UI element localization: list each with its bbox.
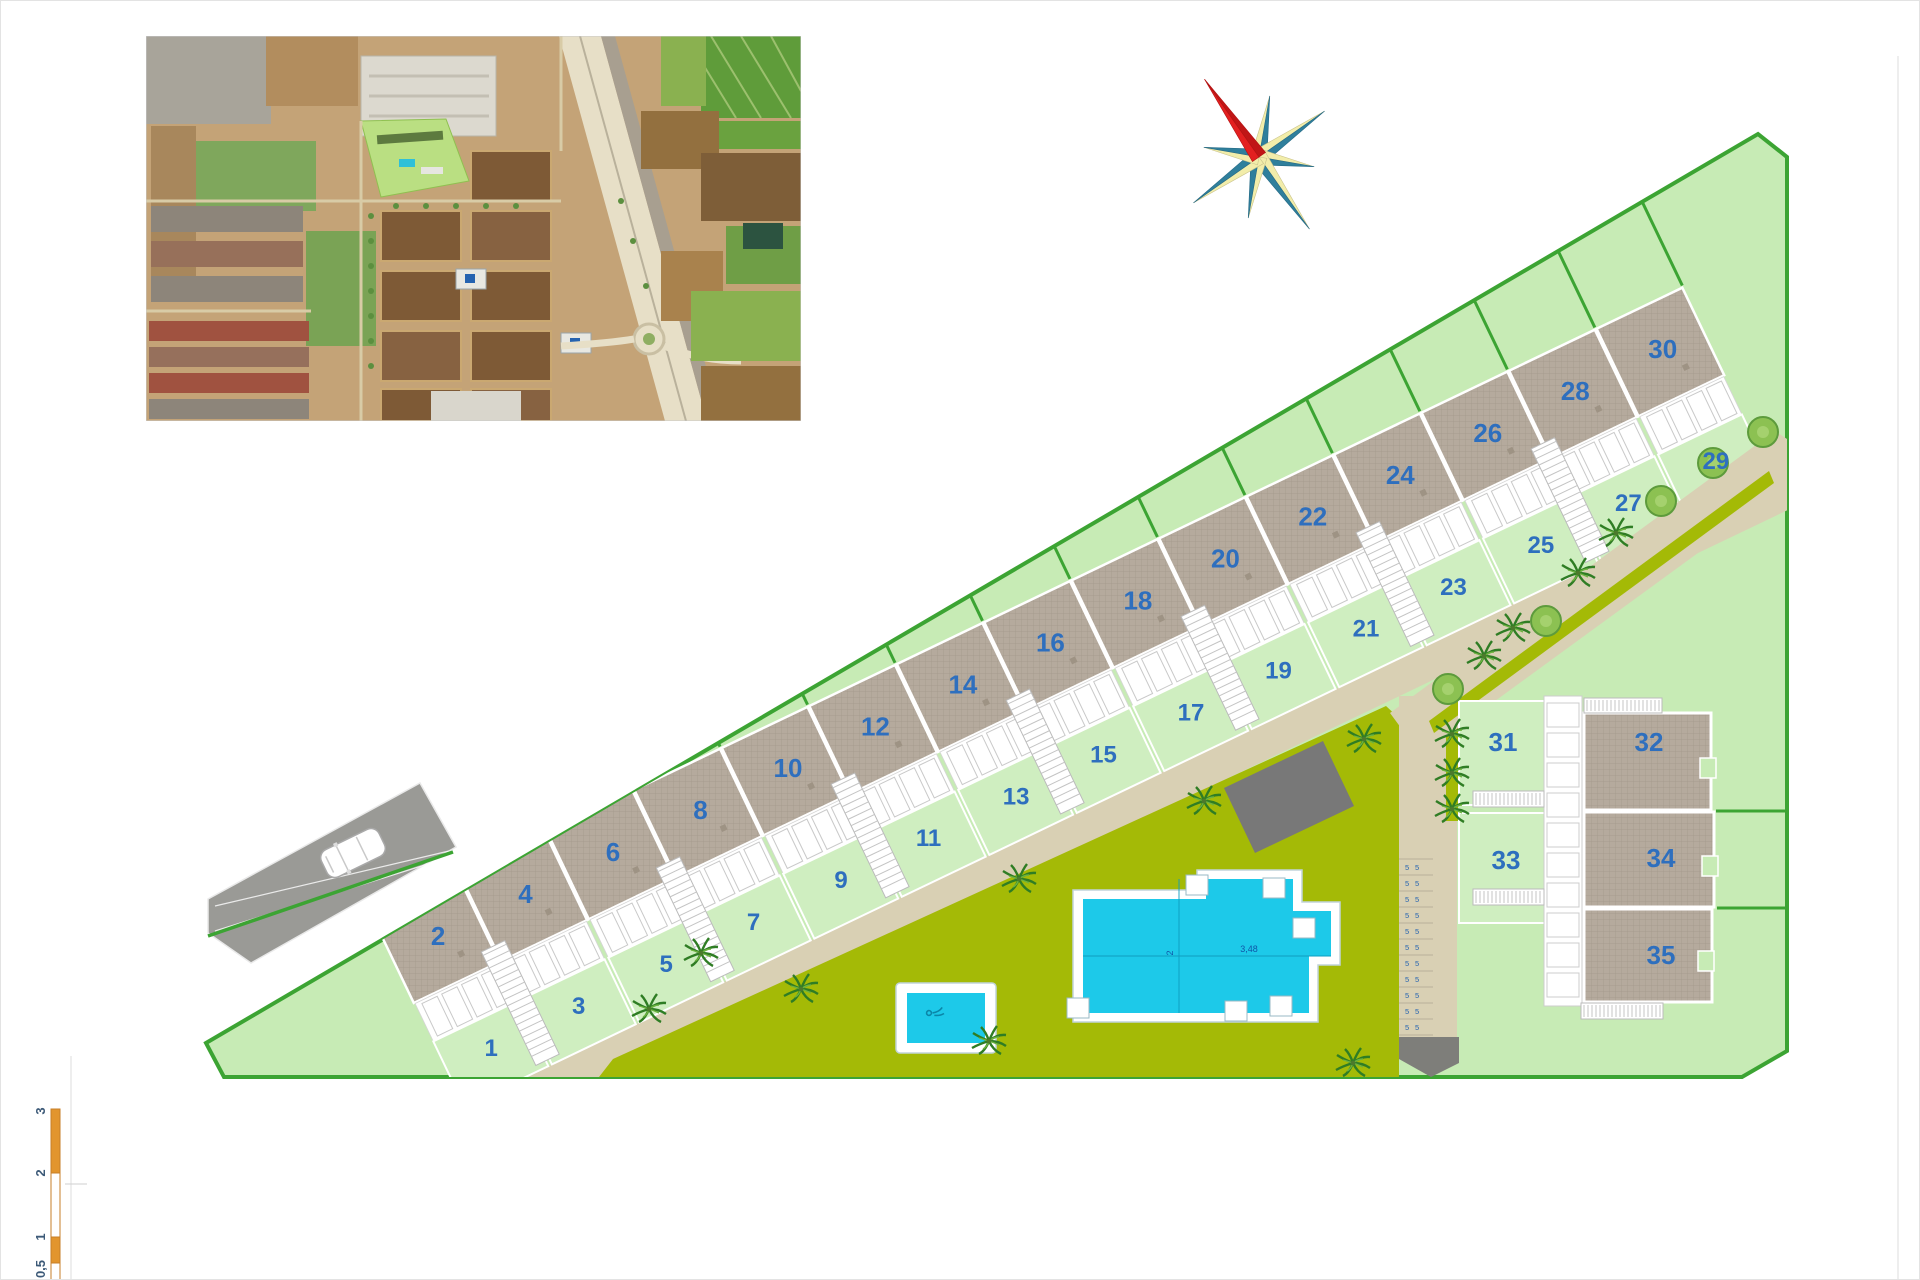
access-road: 555555555555555555555555: [1399, 696, 1459, 1077]
plot-label: 29: [1703, 448, 1730, 475]
plot-label: 24: [1386, 460, 1415, 490]
scale-bar: 3210,5: [33, 1107, 60, 1280]
pool-dim-width: 2: [1165, 950, 1175, 955]
plot-label: 5: [660, 951, 673, 978]
parking-mark: 5: [1405, 927, 1409, 936]
main-pool: 23,48: [1067, 870, 1340, 1022]
plot-label: 31: [1489, 727, 1518, 757]
plot-label: 16: [1036, 628, 1065, 658]
plot-label: 9: [834, 867, 847, 894]
plot-label: 12: [861, 711, 890, 741]
plot-label: 21: [1353, 616, 1380, 643]
parking-mark: 5: [1405, 1007, 1409, 1016]
parking-mark: 5: [1415, 895, 1419, 904]
parking-mark: 5: [1405, 911, 1409, 920]
plot-label: 22: [1298, 502, 1327, 532]
plot-label: 34: [1647, 843, 1676, 873]
plot-label: 25: [1528, 532, 1555, 559]
parking-mark: 5: [1405, 863, 1409, 872]
plot-label: 4: [518, 879, 533, 909]
plot-label: 15: [1090, 741, 1117, 768]
scale-label: 3: [33, 1107, 48, 1114]
plot-label: 32: [1635, 727, 1664, 757]
scale-label: 2: [33, 1169, 48, 1176]
round-tree: [1748, 417, 1778, 447]
plot-label: 27: [1615, 490, 1642, 517]
round-tree: [1646, 486, 1676, 516]
parking-mark: 5: [1415, 943, 1419, 952]
compass-rose: [1175, 73, 1338, 236]
plot-label: 11: [916, 825, 941, 852]
parking-mark: 5: [1415, 959, 1419, 968]
parking-mark: 5: [1415, 1007, 1419, 1016]
parking-mark: 5: [1415, 991, 1419, 1000]
plot-label: 35: [1647, 940, 1676, 970]
plot-label: 1: [485, 1035, 498, 1062]
plot-label: 17: [1178, 700, 1205, 727]
parking-mark: 5: [1405, 975, 1409, 984]
plot-label: 2: [431, 921, 445, 951]
plot-label: 30: [1648, 334, 1677, 364]
parking-mark: 5: [1415, 975, 1419, 984]
plot-label: 7: [747, 909, 760, 936]
plot-label: 23: [1440, 574, 1467, 601]
parking-mark: 5: [1405, 991, 1409, 1000]
pool-dim-length: 3,48: [1240, 944, 1258, 954]
site-plan-page: 555555555555555555555555 23,48: [0, 0, 1920, 1280]
plot-label: 18: [1123, 586, 1152, 616]
parking-mark: 5: [1405, 959, 1409, 968]
plot-label: 8: [693, 795, 707, 825]
parking-mark: 5: [1405, 943, 1409, 952]
plot-label: 20: [1211, 544, 1240, 574]
parking-mark: 5: [1415, 911, 1419, 920]
site-plan-drawing: 555555555555555555555555 23,48: [1, 1, 1920, 1280]
aerial-photo-inset: [146, 36, 801, 421]
scale-label: 1: [33, 1233, 48, 1240]
parking-mark: 5: [1415, 927, 1419, 936]
plot-label: 19: [1265, 658, 1292, 685]
plot-label: 14: [948, 669, 977, 699]
plot-label: 6: [606, 837, 620, 867]
plot-label: 13: [1003, 783, 1030, 810]
parking-mark: 5: [1415, 1023, 1419, 1032]
parking-mark: 5: [1405, 1023, 1409, 1032]
scale-label: 0,5: [33, 1260, 48, 1278]
round-tree: [1433, 674, 1463, 704]
plot-label: 3: [572, 993, 585, 1020]
plot-label: 33: [1492, 845, 1521, 875]
round-tree: [1531, 606, 1561, 636]
parking-mark: 5: [1415, 879, 1419, 888]
plot-label: 28: [1561, 376, 1590, 406]
plot-label: 10: [774, 753, 803, 783]
parking-mark: 5: [1405, 879, 1409, 888]
parking-mark: 5: [1405, 895, 1409, 904]
parking-mark: 5: [1415, 863, 1419, 872]
plot-label: 26: [1473, 418, 1502, 448]
